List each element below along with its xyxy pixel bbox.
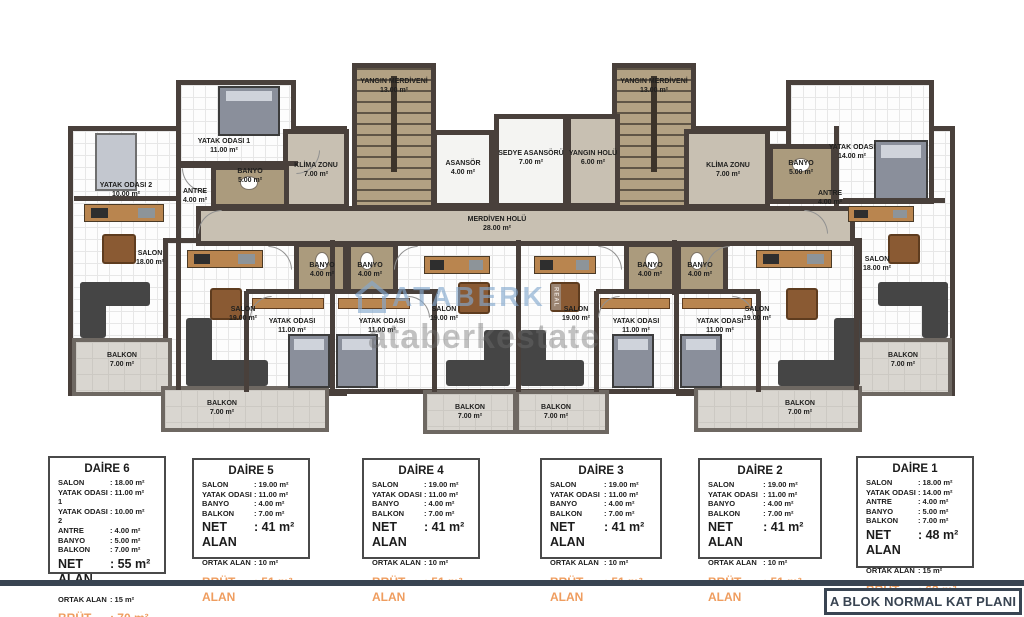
balcony-d4-label: BALKON7.00 m²: [455, 404, 485, 422]
spec-row: NET ALAN: 41 m²: [550, 520, 652, 550]
spec-row: BANYO: 5.00 m²: [58, 536, 156, 546]
spec-row: BALKON: 7.00 m²: [58, 545, 156, 555]
living-d2-label: SALON19.00 m²: [743, 306, 771, 324]
bed-furniture: [288, 334, 330, 388]
sofa-furniture: [80, 282, 106, 338]
bath-d1-label: BANYO5.00 m²: [788, 160, 813, 178]
living-d1-label: SALON18.00 m²: [863, 256, 891, 274]
living-d4-label: SALON19.00 m²: [430, 306, 458, 324]
spec-row: BALKON: 7.00 m²: [866, 516, 964, 526]
spec-row: NET ALAN: 41 m²: [372, 520, 470, 550]
bedroom-d4-label: YATAK ODASI11.00 m²: [359, 318, 406, 336]
elevator-label: ASANSÖR4.00 m²: [445, 160, 480, 178]
wall-segment: [332, 289, 438, 294]
spec-row: ORTAK ALAN: 15 m²: [58, 595, 156, 605]
bath-d3-label: BANYO4.00 m²: [637, 262, 662, 280]
spec-row: ORTAK ALAN: 10 m²: [202, 558, 300, 568]
balcony-d6-label: BALKON7.00 m²: [107, 352, 137, 370]
spec-row: NET ALAN: 48 m²: [866, 528, 964, 558]
spec-row: BANYO: 4.00 m²: [372, 499, 470, 509]
balcony-d2-room: [694, 386, 862, 432]
bedroom-d1-label: YATAK ODASI14.00 m²: [829, 144, 876, 162]
kitchen-furniture: [534, 256, 596, 274]
spec-row: ORTAK ALAN: 10 m²: [550, 558, 652, 568]
bed-furniture: [218, 86, 280, 136]
sofa-furniture: [186, 360, 268, 386]
bedroom-d3-label: YATAK ODASI11.00 m²: [613, 318, 660, 336]
drawing-title-block: A BLOK NORMAL KAT PLANI: [824, 588, 1022, 615]
balcony-d3-label: BALKON7.00 m²: [541, 404, 571, 422]
spec-row: SALON: 19.00 m²: [550, 480, 652, 490]
bath-d4-label: BANYO4.00 m²: [357, 262, 382, 280]
bed-furniture: [680, 334, 722, 388]
spec-row: NET ALAN: 41 m²: [202, 520, 300, 550]
kitchen-furniture: [84, 204, 164, 222]
spec-row: YATAK ODASI: 11.00 m²: [708, 490, 812, 500]
sofa-furniture: [922, 282, 948, 338]
sofa-furniture: [778, 360, 860, 386]
fire-stairs-right-label: YANGIN MERDİVENİ13.00 m²: [620, 78, 687, 96]
spec-row: BALKON: 7.00 m²: [372, 509, 470, 519]
wall-segment: [176, 124, 181, 242]
wall-segment: [676, 289, 760, 294]
spec-row: ANTRE: 4.00 m²: [58, 526, 156, 536]
balcony-d5-label: BALKON7.00 m²: [207, 400, 237, 418]
spec-row: SALON: 19.00 m²: [372, 480, 470, 490]
spec-row: SALON: 18.00 m²: [866, 478, 964, 488]
balcony-d5-room: [161, 386, 329, 432]
bed-furniture: [874, 140, 928, 200]
spec-table-daire-2: DAİRE 2SALON: 19.00 m²YATAK ODASI: 11.00…: [698, 458, 822, 559]
hvac-left-label: KLİMA ZONU7.00 m²: [294, 162, 338, 180]
spec-title-daire-4: DAİRE 4: [372, 465, 470, 477]
table-furniture: [786, 288, 818, 320]
bath-d2-label: BANYO4.00 m²: [687, 262, 712, 280]
balcony-d2-label: BALKON7.00 m²: [785, 400, 815, 418]
spec-row: BALKON: 7.00 m²: [708, 509, 812, 519]
bedroom2-d6-label: YATAK ODASI 210.00 m²: [100, 182, 152, 200]
footer-divider-bar: [0, 580, 1024, 586]
wall-segment: [594, 291, 599, 392]
bath-d5-label: BANYO4.00 m²: [309, 262, 334, 280]
kitchen-furniture: [187, 250, 263, 268]
wall-segment: [176, 240, 181, 390]
spec-title-daire-2: DAİRE 2: [708, 465, 812, 477]
wall-segment: [516, 240, 521, 392]
fire-stairs-left-label: YANGIN MERDİVENİ13.00 m²: [360, 78, 427, 96]
floor-plan-page: YANGIN MERDİVENİ13.00 m²YANGIN MERDİVENİ…: [0, 0, 1024, 617]
sofa-furniture: [520, 360, 584, 386]
spec-row: ORTAK ALAN: 15 m²: [866, 566, 964, 576]
spec-row: YATAK ODASI: 11.00 m²: [372, 490, 470, 500]
wall-segment: [674, 291, 679, 392]
spec-row: YATAK ODASI: 14.00 m²: [866, 488, 964, 498]
spec-row: BANYO: 5.00 m²: [866, 507, 964, 517]
wall-segment: [672, 240, 677, 295]
wall-segment: [843, 198, 945, 203]
spec-row: YATAK ODASI: 11.00 m²: [550, 490, 652, 500]
spec-row: BANYO: 4.00 m²: [550, 499, 652, 509]
spec-row: BANYO: 4.00 m²: [708, 499, 812, 509]
living-d6-label: SALON18.00 m²: [136, 250, 164, 268]
kitchen-furniture: [424, 256, 490, 274]
wall-segment: [176, 161, 298, 166]
spec-row: ORTAK ALAN: 10 m²: [372, 558, 470, 568]
drawing-title: A BLOK NORMAL KAT PLANI: [830, 594, 1016, 609]
wall-segment: [854, 240, 859, 390]
bed-furniture: [336, 334, 378, 388]
stretcher-elevator-label: SEDYE ASANSÖRÜ7.00 m²: [498, 150, 563, 168]
spec-row: BANYO: 4.00 m²: [202, 499, 300, 509]
spec-row: SALON: 19.00 m²: [708, 480, 812, 490]
bath-d6-label: BANYO5.00 m²: [237, 168, 262, 186]
spec-table-daire-4: DAİRE 4SALON: 19.00 m²YATAK ODASI: 11.00…: [362, 458, 480, 559]
fire-hall-label: YANGIN HOLÜ6.00 m²: [569, 150, 617, 168]
spec-row: BRÜT ALAN: 70 m²: [58, 611, 156, 617]
spec-title-daire-6: DAİRE 6: [58, 463, 156, 475]
table-furniture: [102, 234, 136, 264]
living-d5-label: SALON19.00 m²: [229, 306, 257, 324]
wall-segment: [596, 289, 678, 294]
stair-hall-label: MERDİVEN HOLÜ28.00 m²: [468, 216, 527, 234]
table-furniture: [458, 282, 490, 314]
spec-row: YATAK ODASI 2: 10.00 m²: [58, 507, 156, 526]
bedroom-d2-label: YATAK ODASI11.00 m²: [697, 318, 744, 336]
spec-row: YATAK ODASI: 11.00 m²: [202, 490, 300, 500]
spec-row: BALKON: 7.00 m²: [550, 509, 652, 519]
bedroom-d5-label: YATAK ODASI11.00 m²: [269, 318, 316, 336]
spec-row: SALON: 19.00 m²: [202, 480, 300, 490]
hall-d6-label: ANTRE4.00 m²: [183, 188, 207, 206]
spec-title-daire-5: DAİRE 5: [202, 465, 300, 477]
spec-row: ORTAK ALAN: 10 m²: [708, 558, 812, 568]
spec-title-daire-3: DAİRE 3: [550, 465, 652, 477]
spec-row: ANTRE: 4.00 m²: [866, 497, 964, 507]
bed-furniture: [612, 334, 654, 388]
table-furniture: [888, 234, 920, 264]
spec-row: YATAK ODASI 1: 11.00 m²: [58, 488, 156, 507]
living-d3-label: SALON19.00 m²: [562, 306, 590, 324]
spec-title-daire-1: DAİRE 1: [866, 463, 964, 475]
kitchen-furniture: [848, 206, 914, 222]
kitchen-furniture: [756, 250, 832, 268]
spec-table-daire-5: DAİRE 5SALON: 19.00 m²YATAK ODASI: 11.00…: [192, 458, 310, 559]
spec-table-daire-3: DAİRE 3SALON: 19.00 m²YATAK ODASI: 11.00…: [540, 458, 662, 559]
hvac-right-label: KLİMA ZONU7.00 m²: [706, 162, 750, 180]
hall-d1-label: ANTRE4.00 m²: [818, 190, 842, 208]
balcony-d1-label: BALKON7.00 m²: [888, 352, 918, 370]
spec-table-daire-1: DAİRE 1SALON: 18.00 m²YATAK ODASI: 14.00…: [856, 456, 974, 568]
wall-segment: [330, 291, 335, 392]
bedroom1-d6-label: YATAK ODASI 111.00 m²: [198, 138, 250, 156]
wall-segment: [246, 289, 332, 294]
spec-row: SALON: 18.00 m²: [58, 478, 156, 488]
spec-table-daire-6: DAİRE 6SALON: 18.00 m²YATAK ODASI 1: 11.…: [48, 456, 166, 574]
spec-row: BALKON: 7.00 m²: [202, 509, 300, 519]
wood-furniture: [338, 298, 410, 309]
spec-row: NET ALAN: 41 m²: [708, 520, 812, 550]
sofa-furniture: [446, 360, 510, 386]
